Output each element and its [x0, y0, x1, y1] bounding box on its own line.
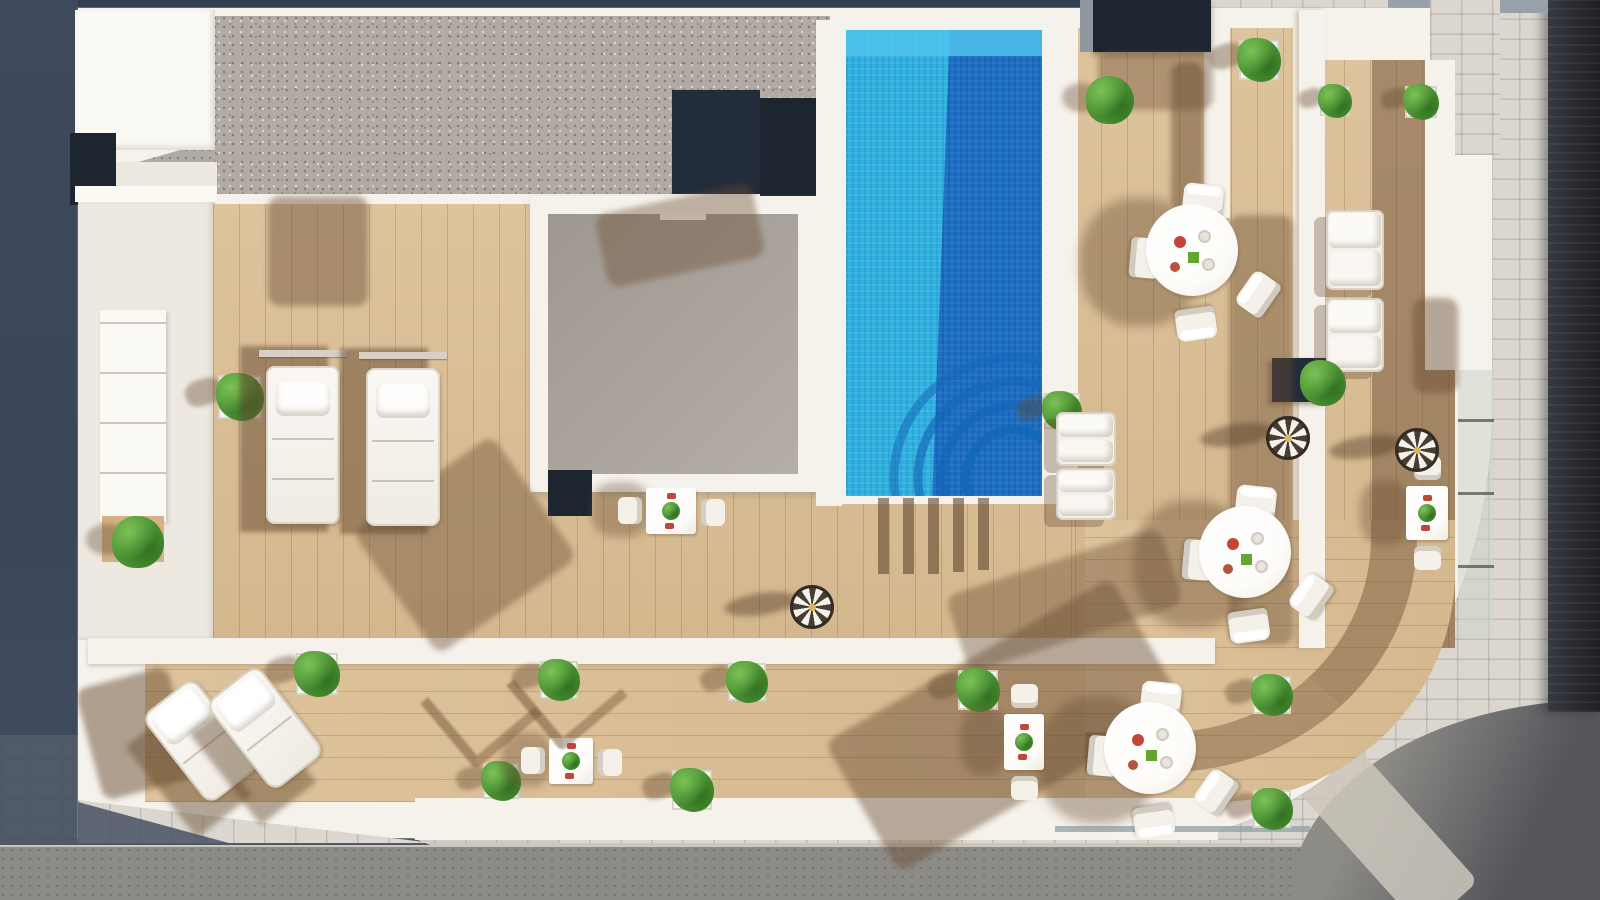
chair-3 [1174, 305, 1218, 342]
cushion-pillow-b [1059, 440, 1113, 462]
bush-foliage [1086, 76, 1134, 124]
parasol-pole [1414, 447, 1421, 454]
plate-red [1132, 734, 1144, 746]
lounger-mattress [366, 368, 440, 526]
cup-1 [1198, 230, 1211, 243]
planter-1 [1239, 40, 1279, 80]
plate-red-2 [1128, 760, 1138, 770]
bistro-item-red2 [665, 523, 674, 529]
bistro-item-red2 [1421, 525, 1430, 531]
bistro-plant [562, 752, 580, 770]
bistro-plant [1015, 733, 1033, 751]
bistro-item-red2 [1018, 754, 1027, 760]
lounger-mattress [266, 366, 340, 524]
plate-red [1227, 538, 1239, 550]
angled-lounger-back [213, 672, 279, 735]
planter-foliage [670, 768, 714, 812]
planter-foliage [1237, 38, 1281, 82]
parasol-1 [1266, 416, 1310, 460]
planter-7 [728, 663, 766, 701]
planter-foliage [1318, 84, 1352, 118]
parasol-pole [1285, 435, 1292, 442]
cushion-pillow-a [1329, 301, 1381, 333]
bush-0 [112, 516, 164, 568]
table-top [1104, 702, 1196, 794]
table-top [1199, 506, 1291, 598]
bistro-top [1004, 714, 1044, 770]
bistro-chair-right [598, 749, 622, 776]
planter-2 [1320, 86, 1350, 116]
planter-5 [296, 653, 338, 695]
bistro-chair-bottom [1011, 776, 1038, 800]
chair-back [1180, 327, 1215, 341]
rooftop-render-scene [0, 0, 1600, 900]
cup-2 [1202, 258, 1215, 271]
parasol-2 [1395, 428, 1439, 472]
cushion-pillow-b [1059, 495, 1113, 516]
cushion-bench-1 [1326, 298, 1384, 372]
cup-1 [1251, 532, 1264, 545]
chair-back [1237, 272, 1264, 305]
planter-foliage [1403, 84, 1439, 120]
chair-back [1290, 574, 1317, 607]
plate-red-2 [1170, 262, 1180, 272]
cushion-bench-0 [1326, 210, 1384, 290]
bistro-plant [1418, 504, 1436, 522]
lounger-pillow [376, 384, 430, 418]
plate-red-2 [1223, 564, 1233, 574]
chair-3 [1227, 607, 1271, 644]
planter-9 [1253, 676, 1291, 714]
bistro-item-red [667, 493, 676, 499]
planter-11 [1253, 790, 1291, 828]
furniture-layer [0, 0, 1600, 900]
lounger-rail [259, 350, 347, 357]
lounger-seam-1 [272, 438, 334, 440]
chair-back [1138, 825, 1173, 839]
planter-foliage [1251, 788, 1293, 830]
cushion-pillow-a [1059, 415, 1113, 437]
bistro-chair-bottom [1414, 546, 1441, 570]
bistro-item-red2 [565, 773, 574, 779]
planter-10 [672, 770, 712, 810]
plate-red [1174, 236, 1186, 248]
chair-back [1233, 629, 1268, 643]
navy-box-plant [1300, 360, 1346, 406]
planter-foliage [726, 661, 768, 703]
lounger-seam-1 [372, 440, 434, 442]
cushion-bench-3 [1056, 468, 1116, 520]
lounger-pillow [276, 382, 330, 416]
planter-foliage [1251, 674, 1293, 716]
planter-3 [1405, 86, 1437, 118]
bistro-item-red [1423, 495, 1432, 501]
lounger-seam-2 [372, 480, 434, 482]
cushion-bench-2 [1056, 412, 1116, 466]
napkin-green [1146, 750, 1157, 761]
chair-back [1187, 184, 1222, 197]
chair-2 [1233, 268, 1282, 319]
chair-back [1145, 682, 1180, 695]
parasol-pole [809, 604, 816, 611]
parasol-shadow [1328, 431, 1404, 463]
parasol-shadow [723, 588, 799, 620]
sun-lounger-1 [366, 368, 440, 526]
cup-2 [1255, 560, 1268, 573]
chair-back [1195, 770, 1222, 803]
cup-1 [1156, 728, 1169, 741]
bush-1 [1086, 76, 1134, 124]
cushion-pillow-a [1059, 471, 1113, 492]
bistro-chair-right [701, 499, 725, 526]
bistro-chair-left [618, 497, 642, 524]
bistro-top [1406, 486, 1448, 540]
parasol-shadow [1199, 419, 1275, 451]
lounger-rail [359, 352, 447, 359]
bistro-shadow [1360, 480, 1410, 545]
chair-2 [1286, 570, 1335, 621]
sun-lounger-0 [266, 366, 340, 524]
cushion-pillow-a [1329, 213, 1381, 248]
bistro-plant [662, 502, 680, 520]
bistro-chair-top [1011, 684, 1038, 708]
napkin-green [1188, 252, 1199, 263]
cup-2 [1160, 756, 1173, 769]
chair-3 [1132, 803, 1176, 840]
cushion-pillow-b [1329, 251, 1381, 286]
bush-foliage [112, 516, 164, 568]
bistro-set-3 [1406, 486, 1448, 540]
bistro-set-2 [1004, 714, 1044, 770]
bistro-top [646, 488, 696, 534]
planter-8 [958, 670, 998, 710]
napkin-green [1241, 554, 1252, 565]
table-top [1146, 204, 1238, 296]
bistro-shadow [960, 708, 1008, 775]
bistro-item-red [1020, 724, 1029, 730]
bistro-set-0 [646, 488, 696, 534]
lounger-seam-2 [272, 478, 334, 480]
chair-back [1240, 486, 1275, 499]
bistro-chair-left [521, 747, 545, 774]
cushion-pillow-b [1329, 336, 1381, 368]
planter-foliage [956, 668, 1000, 712]
parasol-0 [790, 585, 834, 629]
